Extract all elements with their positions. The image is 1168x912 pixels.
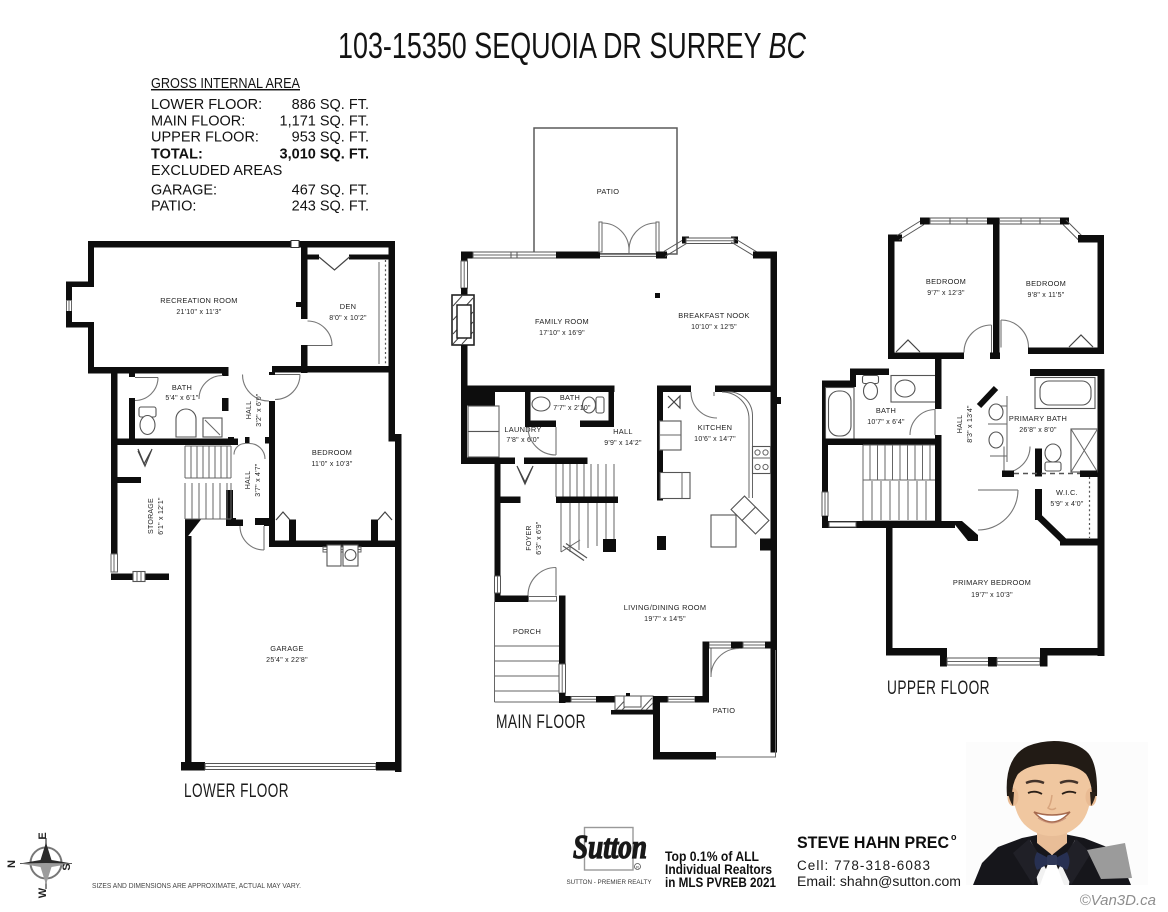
svg-text:HALL: HALL (245, 471, 252, 490)
svg-text:o: o (951, 832, 957, 842)
svg-text:9'8" x 11'5": 9'8" x 11'5" (1028, 292, 1065, 299)
svg-text:GARAGE: GARAGE (270, 644, 303, 653)
svg-text:GARAGE:: GARAGE: (151, 183, 217, 199)
svg-text:in MLS PVREB 2021: in MLS PVREB 2021 (665, 875, 776, 890)
svg-text:SIZES AND DIMENSIONS ARE APPRO: SIZES AND DIMENSIONS ARE APPROXIMATE, AC… (92, 881, 301, 890)
svg-text:1,171 SQ. FT.: 1,171 SQ. FT. (280, 114, 369, 130)
svg-text:5'4" x 6'1": 5'4" x 6'1" (165, 395, 199, 402)
svg-text:SUTTON - PREMIER REALTY: SUTTON - PREMIER REALTY (567, 879, 653, 886)
svg-text:W: W (37, 887, 49, 898)
svg-text:W.I.C.: W.I.C. (1056, 488, 1078, 497)
svg-text:TOTAL:: TOTAL: (151, 147, 203, 163)
svg-text:19'7" x 14'5": 19'7" x 14'5" (644, 616, 686, 623)
svg-text:STORAGE: STORAGE (148, 498, 155, 534)
svg-text:N: N (6, 860, 18, 868)
svg-text:953 SQ. FT.: 953 SQ. FT. (292, 130, 369, 146)
svg-text:UPPER FLOOR: UPPER FLOOR (887, 677, 990, 699)
svg-text:PRIMARY BATH: PRIMARY BATH (1009, 414, 1067, 423)
svg-text:10'6" x 14'7": 10'6" x 14'7" (694, 436, 736, 443)
svg-text:Sutton: Sutton (573, 829, 647, 866)
svg-text:10'10" x 12'5": 10'10" x 12'5" (691, 324, 737, 331)
svg-text:PATIO:: PATIO: (151, 199, 196, 215)
svg-text:19'7" x 10'3": 19'7" x 10'3" (971, 592, 1013, 599)
svg-text:21'10" x 11'3": 21'10" x 11'3" (176, 309, 222, 316)
svg-text:KITCHEN: KITCHEN (698, 423, 733, 432)
svg-text:GROSS INTERNAL AREA: GROSS INTERNAL AREA (151, 76, 300, 92)
svg-text:PORCH: PORCH (513, 627, 541, 636)
svg-text:PATIO: PATIO (713, 706, 736, 715)
svg-text:PATIO: PATIO (597, 187, 620, 196)
svg-text:STEVE HAHN PREC: STEVE HAHN PREC (797, 834, 949, 852)
svg-text:BEDROOM: BEDROOM (1026, 279, 1066, 288)
svg-text:886 SQ. FT.: 886 SQ. FT. (292, 97, 369, 113)
svg-text:BREAKFAST NOOK: BREAKFAST NOOK (678, 311, 749, 320)
svg-text:LOWER FLOOR:: LOWER FLOOR: (151, 97, 262, 113)
svg-text:17'10" x 16'9": 17'10" x 16'9" (539, 330, 585, 337)
svg-text:LIVING/DINING ROOM: LIVING/DINING ROOM (624, 603, 707, 612)
svg-text:BATH: BATH (560, 393, 580, 402)
svg-text:HALL: HALL (957, 415, 964, 434)
svg-text:25'4" x 22'8": 25'4" x 22'8" (266, 657, 308, 664)
svg-text:26'8" x 8'0": 26'8" x 8'0" (1019, 427, 1057, 434)
svg-text:FAMILY ROOM: FAMILY ROOM (535, 317, 589, 326)
svg-text:Email: shahn@sutton.com: Email: shahn@sutton.com (797, 874, 961, 889)
svg-text:10'7" x 6'4": 10'7" x 6'4" (867, 419, 905, 426)
svg-text:467 SQ. FT.: 467 SQ. FT. (292, 183, 369, 199)
svg-text:UPPER FLOOR:: UPPER FLOOR: (151, 130, 259, 146)
svg-text:3'7" x 4'7": 3'7" x 4'7" (255, 463, 262, 497)
svg-text:8'0" x 10'2": 8'0" x 10'2" (329, 315, 367, 322)
svg-text:EXCLUDED AREAS: EXCLUDED AREAS (151, 163, 282, 179)
svg-text:S: S (61, 863, 73, 870)
svg-text:BATH: BATH (172, 383, 192, 392)
svg-text:DEN: DEN (340, 302, 357, 311)
svg-text:7'8" x 6'0": 7'8" x 6'0" (506, 437, 540, 444)
svg-text:RECREATION ROOM: RECREATION ROOM (160, 296, 237, 305)
svg-text:E: E (37, 832, 49, 839)
svg-text:HALL: HALL (613, 427, 633, 436)
svg-text:6'3" x 6'9": 6'3" x 6'9" (536, 521, 543, 555)
svg-text:3,010 SQ. FT.: 3,010 SQ. FT. (280, 147, 369, 163)
svg-text:9'7" x 12'3": 9'7" x 12'3" (927, 290, 965, 297)
svg-text:HALL: HALL (246, 401, 253, 420)
svg-text:LOWER FLOOR: LOWER FLOOR (184, 780, 289, 802)
svg-text:243 SQ. FT.: 243 SQ. FT. (292, 199, 369, 215)
svg-text:103-15350 SEQUOIA DR SURREY BC: 103-15350 SEQUOIA DR SURREY BC (338, 25, 807, 66)
svg-text:11'0" x 10'3": 11'0" x 10'3" (311, 461, 352, 468)
svg-text:6'1" x 12'1": 6'1" x 12'1" (158, 497, 165, 535)
svg-text:PRIMARY BEDROOM: PRIMARY BEDROOM (953, 578, 1031, 587)
svg-text:BATH: BATH (876, 406, 896, 415)
svg-text:©Van3D.ca: ©Van3D.ca (1080, 892, 1156, 909)
svg-text:Cell: 778-318-6083: Cell: 778-318-6083 (797, 858, 930, 873)
svg-text:5'9" x 4'0": 5'9" x 4'0" (1050, 501, 1084, 508)
svg-text:9'9" x 14'2": 9'9" x 14'2" (604, 440, 642, 447)
svg-text:8'3" x 13'4": 8'3" x 13'4" (967, 405, 974, 443)
svg-text:7'7" x 2'10": 7'7" x 2'10" (553, 405, 591, 412)
svg-text:MAIN FLOOR:: MAIN FLOOR: (151, 114, 245, 130)
svg-text:MAIN FLOOR: MAIN FLOOR (496, 711, 586, 733)
svg-text:BEDROOM: BEDROOM (926, 277, 966, 286)
svg-text:BEDROOM: BEDROOM (312, 448, 352, 457)
svg-text:FOYER: FOYER (526, 525, 533, 550)
